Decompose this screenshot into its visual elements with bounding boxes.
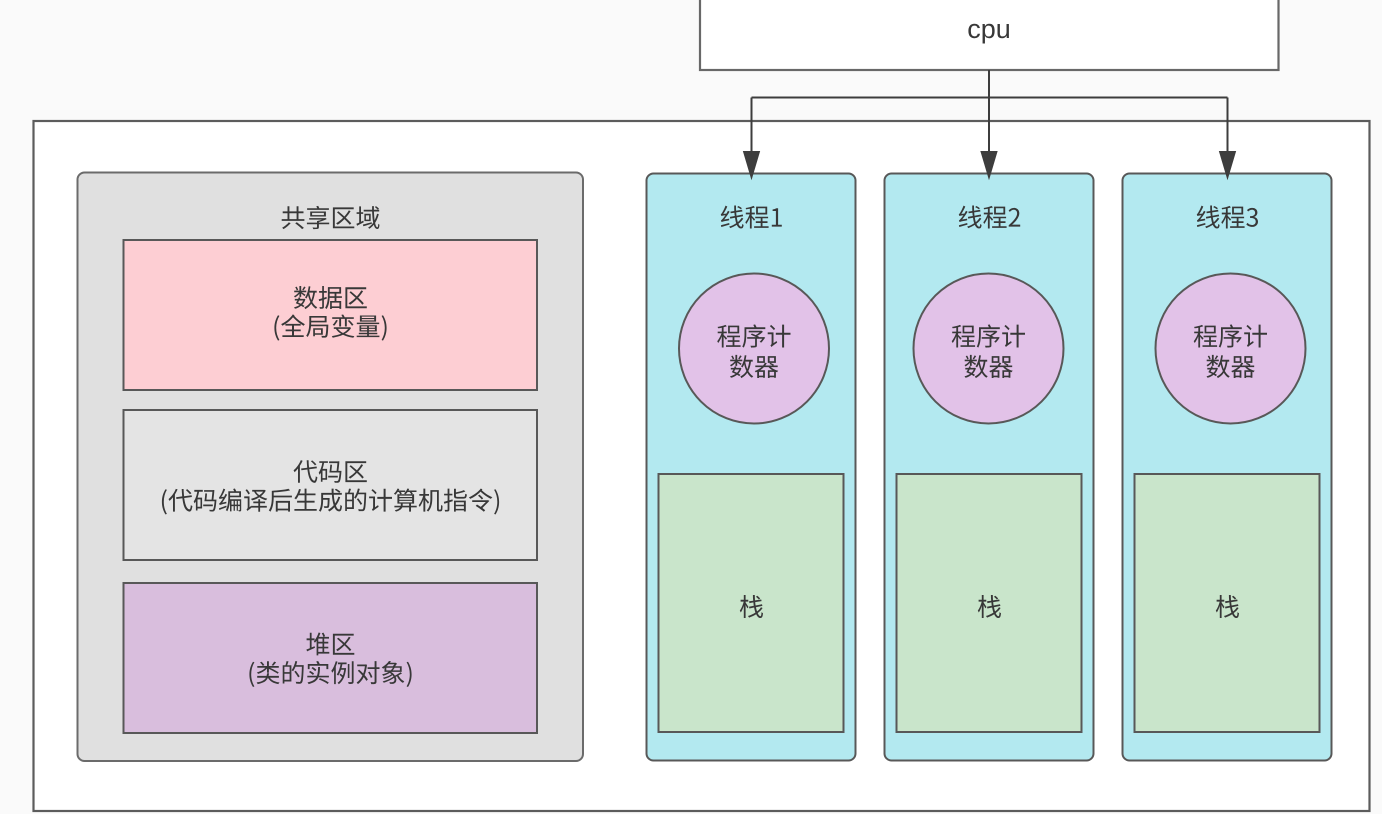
svg-text:cpu: cpu xyxy=(967,14,1011,44)
